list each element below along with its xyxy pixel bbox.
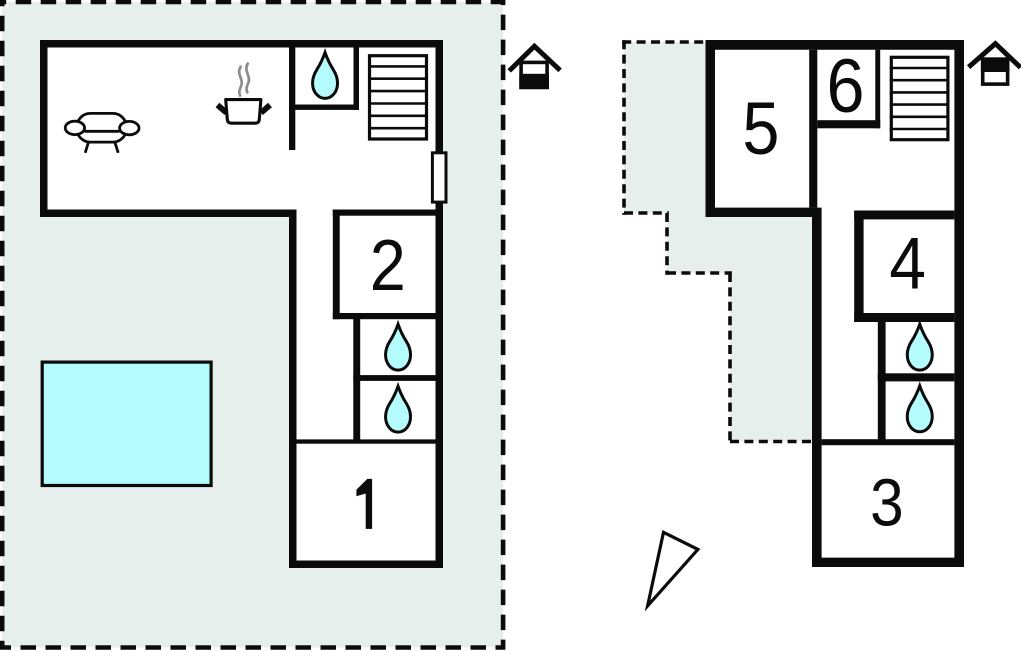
svg-text:3: 3 bbox=[870, 465, 904, 541]
svg-text:4: 4 bbox=[889, 222, 926, 304]
svg-text:6: 6 bbox=[826, 45, 864, 129]
svg-text:5: 5 bbox=[742, 87, 779, 170]
svg-text:2: 2 bbox=[370, 225, 406, 306]
